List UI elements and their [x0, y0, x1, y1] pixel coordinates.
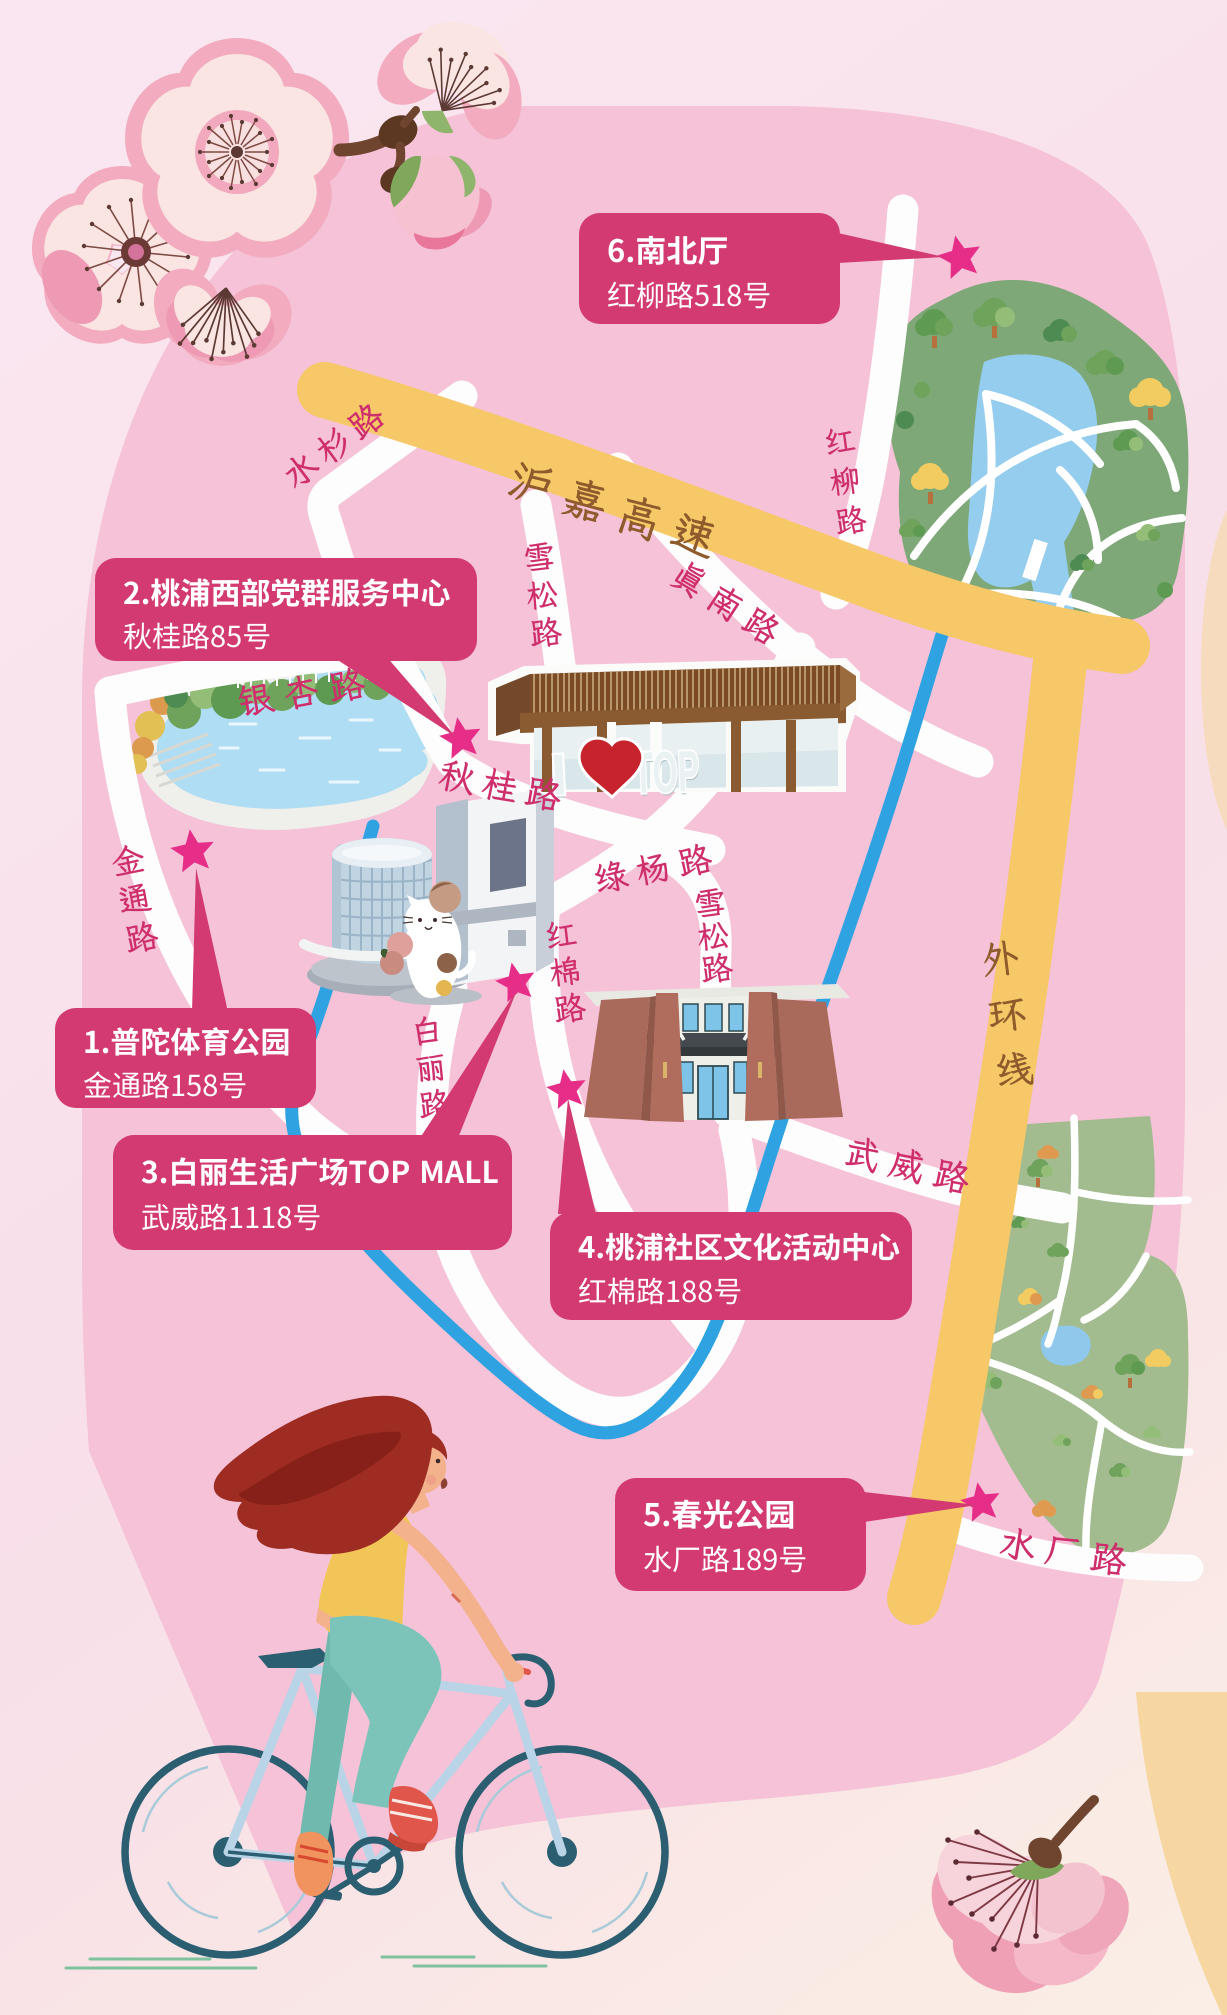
svg-text:I: I [549, 742, 569, 808]
svg-text:TOP: TOP [632, 739, 700, 806]
